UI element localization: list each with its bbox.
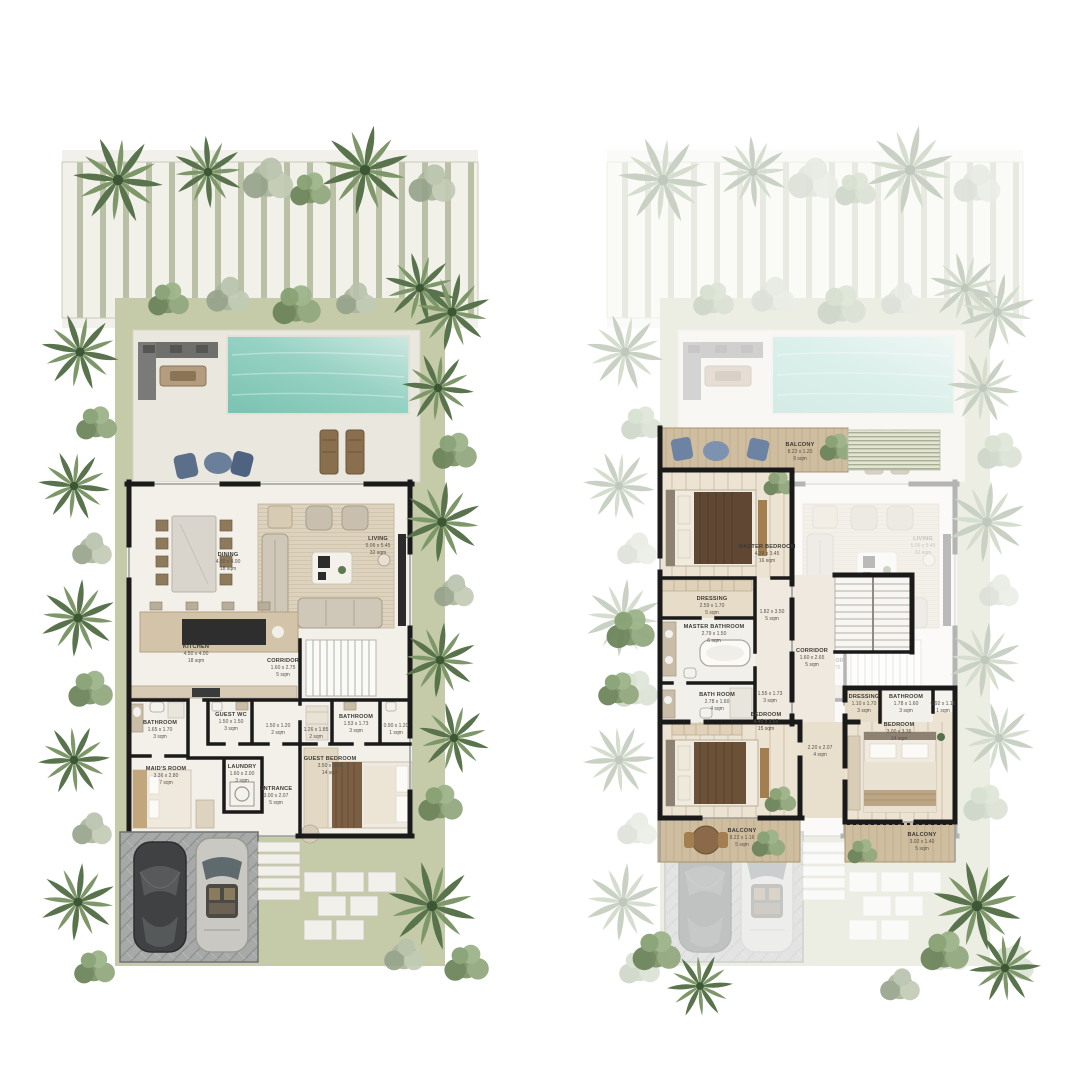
svg-text:1.82 x 3.50: 1.82 x 3.50 <box>760 609 785 615</box>
balcony-right <box>845 822 955 863</box>
svg-text:4 sqm: 4 sqm <box>813 752 827 758</box>
svg-text:5 sqm: 5 sqm <box>765 616 779 622</box>
svg-text:15 sqm: 15 sqm <box>758 726 774 732</box>
svg-text:MASTER BEDROOM: MASTER BEDROOM <box>738 544 795 550</box>
floor-plans-svg: DINING4.50 x 4.0018 sqm LIVING5.06 x 5.4… <box>0 0 1080 1080</box>
floor-plan-sheet: DINING4.50 x 4.0018 sqm LIVING5.06 x 5.4… <box>0 0 1080 1080</box>
svg-text:DRESSING: DRESSING <box>697 596 728 602</box>
svg-text:BATH ROOM: BATH ROOM <box>699 692 735 698</box>
svg-text:1.10 x 1.70: 1.10 x 1.70 <box>852 701 877 707</box>
svg-text:BATHROOM: BATHROOM <box>889 694 923 700</box>
plan-ground-floor <box>25 109 499 983</box>
svg-text:1.60 x 2.65: 1.60 x 2.65 <box>800 655 825 661</box>
svg-text:4.38 x 3.45: 4.38 x 3.45 <box>755 551 780 557</box>
svg-text:16 sqm: 16 sqm <box>759 558 775 564</box>
svg-text:BEDROOM: BEDROOM <box>884 722 915 728</box>
svg-text:3 sqm: 3 sqm <box>763 698 777 704</box>
svg-text:8.22 x 1.20: 8.22 x 1.20 <box>788 449 813 455</box>
svg-text:14 sqm: 14 sqm <box>891 736 907 742</box>
balcony-top <box>658 428 853 472</box>
svg-text:BEDROOM: BEDROOM <box>751 712 782 718</box>
svg-text:2.78 x 1.60: 2.78 x 1.60 <box>705 699 730 705</box>
svg-text:2.59 x 1.70: 2.59 x 1.70 <box>700 603 725 609</box>
svg-text:5 sqm: 5 sqm <box>915 846 929 852</box>
svg-text:3 sqm: 3 sqm <box>899 708 913 714</box>
svg-text:BALCONY: BALCONY <box>785 442 814 448</box>
svg-text:DRESSING: DRESSING <box>849 694 880 700</box>
svg-text:MASTER BATHROOM: MASTER BATHROOM <box>684 624 745 630</box>
svg-text:BALCONY: BALCONY <box>727 828 756 834</box>
louver-roof <box>848 430 940 470</box>
svg-text:1.55 x 1.73: 1.55 x 1.73 <box>758 691 783 697</box>
svg-text:5 sqm: 5 sqm <box>735 842 749 848</box>
svg-text:2.79 x 1.50: 2.79 x 1.50 <box>702 631 727 637</box>
svg-text:9 sqm: 9 sqm <box>793 456 807 462</box>
svg-text:3.02 x 1.40: 3.02 x 1.40 <box>910 839 935 845</box>
svg-text:3 sqm: 3 sqm <box>857 708 871 714</box>
plan-first-floor-base <box>570 109 1044 983</box>
svg-text:8.22 x 1.16: 8.22 x 1.16 <box>730 835 755 841</box>
svg-text:1 sqm: 1 sqm <box>936 708 950 714</box>
stairs-first <box>835 577 911 651</box>
svg-text:BALCONY: BALCONY <box>907 832 936 838</box>
svg-text:5 sqm: 5 sqm <box>705 610 719 616</box>
svg-text:4.45 x 3.65: 4.45 x 3.65 <box>754 719 779 725</box>
svg-text:1.78 x 1.60: 1.78 x 1.60 <box>894 701 919 707</box>
svg-text:3.00 x 3.36: 3.00 x 3.36 <box>887 729 912 735</box>
svg-text:0.92 x 1.16: 0.92 x 1.16 <box>931 701 956 707</box>
dressing-wardrobe <box>662 580 752 591</box>
svg-text:6 sqm: 6 sqm <box>707 638 721 644</box>
svg-text:CORRIDOR: CORRIDOR <box>796 648 828 654</box>
svg-text:2.20 x 2.07: 2.20 x 2.07 <box>808 745 833 751</box>
svg-text:4 sqm: 4 sqm <box>710 706 724 712</box>
svg-text:5 sqm: 5 sqm <box>805 662 819 668</box>
